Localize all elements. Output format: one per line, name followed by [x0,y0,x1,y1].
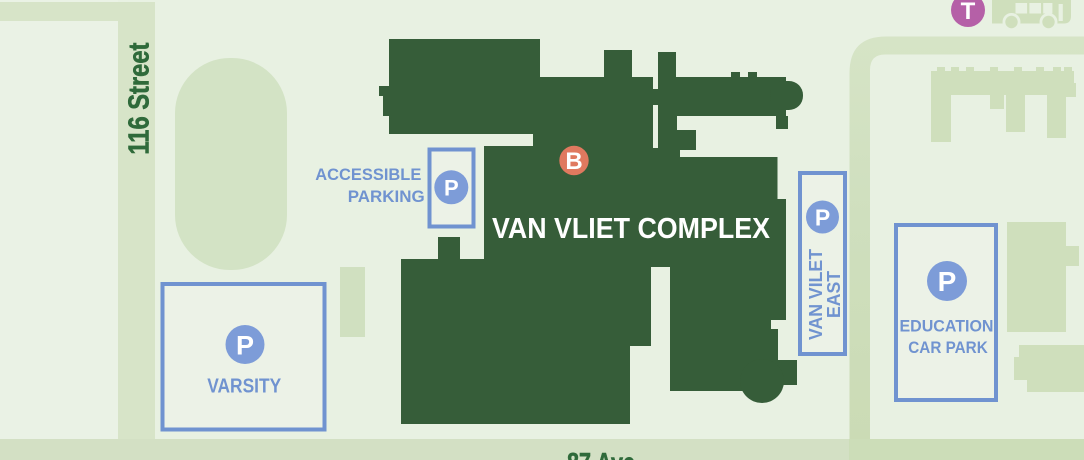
svg-text:87 Ave: 87 Ave [567,447,635,460]
svg-text:P: P [236,331,254,361]
svg-text:CAR PARK: CAR PARK [908,338,988,357]
svg-text:T: T [961,0,976,25]
svg-text:116 Street: 116 Street [124,42,156,154]
svg-text:ACCESSIBLE: ACCESSIBLE [315,165,421,184]
svg-text:VARSITY: VARSITY [207,376,282,398]
svg-text:EAST: EAST [824,271,844,318]
svg-text:VAN VILET: VAN VILET [806,249,826,340]
svg-text:VAN VLIET COMPLEX: VAN VLIET COMPLEX [492,213,770,245]
svg-text:PARKING: PARKING [348,187,425,206]
svg-text:P: P [938,266,957,297]
svg-text:B: B [565,148,582,175]
svg-text:P: P [815,205,830,231]
svg-text:P: P [444,176,459,201]
svg-text:EDUCATION: EDUCATION [900,317,994,336]
